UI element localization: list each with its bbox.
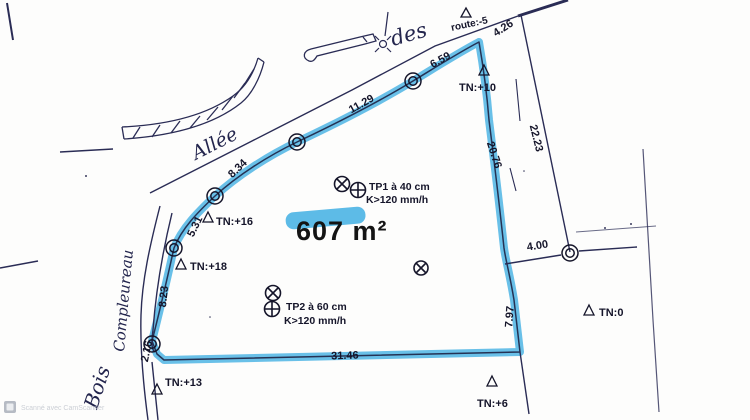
tn-label: TN:+16 xyxy=(216,216,253,228)
topleft-stroke xyxy=(7,3,13,40)
parcel-area-label: 607 m² xyxy=(296,216,388,246)
tn-label: TN:0 xyxy=(599,307,623,319)
circle-x-icon xyxy=(266,286,281,301)
circle-x-icon xyxy=(414,261,428,275)
tick-mark-b xyxy=(510,168,516,191)
allee-front-edge-line xyxy=(150,16,518,193)
dim-line-22-23 xyxy=(521,15,570,252)
tp1-depth-note: TP1 à 40 cm xyxy=(369,181,430,193)
tp2-permeability-note: K>120 mm/h xyxy=(284,315,346,327)
watermark-text: Scanné avec CamScanner xyxy=(21,405,105,412)
tick-mark-a xyxy=(516,79,520,121)
tn-label: TN:+18 xyxy=(190,261,227,273)
survey-plan-scan: 4.26 6.59 11.29 8.34 5.31 8.23 2.16 31.4… xyxy=(0,0,750,420)
measurement-label: 8.23 xyxy=(157,285,171,308)
tp2-depth-note: TP2 à 60 cm xyxy=(286,301,347,313)
street-name-des-text: des xyxy=(388,18,430,51)
route-elevation-label: route:-5 xyxy=(450,15,489,34)
measurement-label: 7.97 xyxy=(503,306,516,328)
triangle-icon xyxy=(152,384,162,394)
triangle-icon xyxy=(176,259,186,269)
test-pit-notes: TP1 à 40 cm K>120 mm/h TP2 à 60 cm K>120… xyxy=(284,181,430,327)
marker-east-line xyxy=(579,247,637,251)
street-name-compleureau: Compleureau xyxy=(110,249,137,353)
tn-label: TN:+6 xyxy=(477,398,508,410)
north-curb-dash xyxy=(60,149,113,152)
road-island-marking xyxy=(304,34,376,61)
triangle-icon xyxy=(487,376,497,386)
elevation-labels: TN:+10 TN:+16 TN:+18 TN:+13 TN:+6 TN:0 r… xyxy=(165,15,623,410)
boundary-marker-icon xyxy=(562,245,578,261)
tn-label: TN:+10 xyxy=(459,82,496,94)
triangle-icon xyxy=(461,8,471,17)
parcel-corner-drop-line xyxy=(520,352,529,414)
measurement-label: 4.26 xyxy=(491,18,516,40)
measurement-label: 4.00 xyxy=(526,238,549,253)
street-name-allee: Allée xyxy=(187,123,242,165)
circle-cross-icon xyxy=(265,302,280,317)
route-edge-thick-line xyxy=(518,0,568,16)
tp1-permeability-note: K>120 mm/h xyxy=(366,194,428,206)
measurement-label: 22.23 xyxy=(527,123,545,153)
triangle-icon xyxy=(584,305,594,315)
faint-upper-east-line xyxy=(576,226,656,232)
left-edge-dash xyxy=(0,261,38,268)
circle-cross-icon xyxy=(351,183,366,198)
neighbor-boundary-line xyxy=(643,149,659,412)
dim-line-4-00 xyxy=(505,255,561,264)
measurement-label: 31.46 xyxy=(331,350,359,363)
hatched-curb-band xyxy=(122,58,264,139)
measurement-label: 20.76 xyxy=(484,140,504,170)
circle-x-icon xyxy=(335,177,350,192)
site-plan-drawing: 4.26 6.59 11.29 8.34 5.31 8.23 2.16 31.4… xyxy=(0,0,750,420)
tn-label: TN:+13 xyxy=(165,377,202,389)
